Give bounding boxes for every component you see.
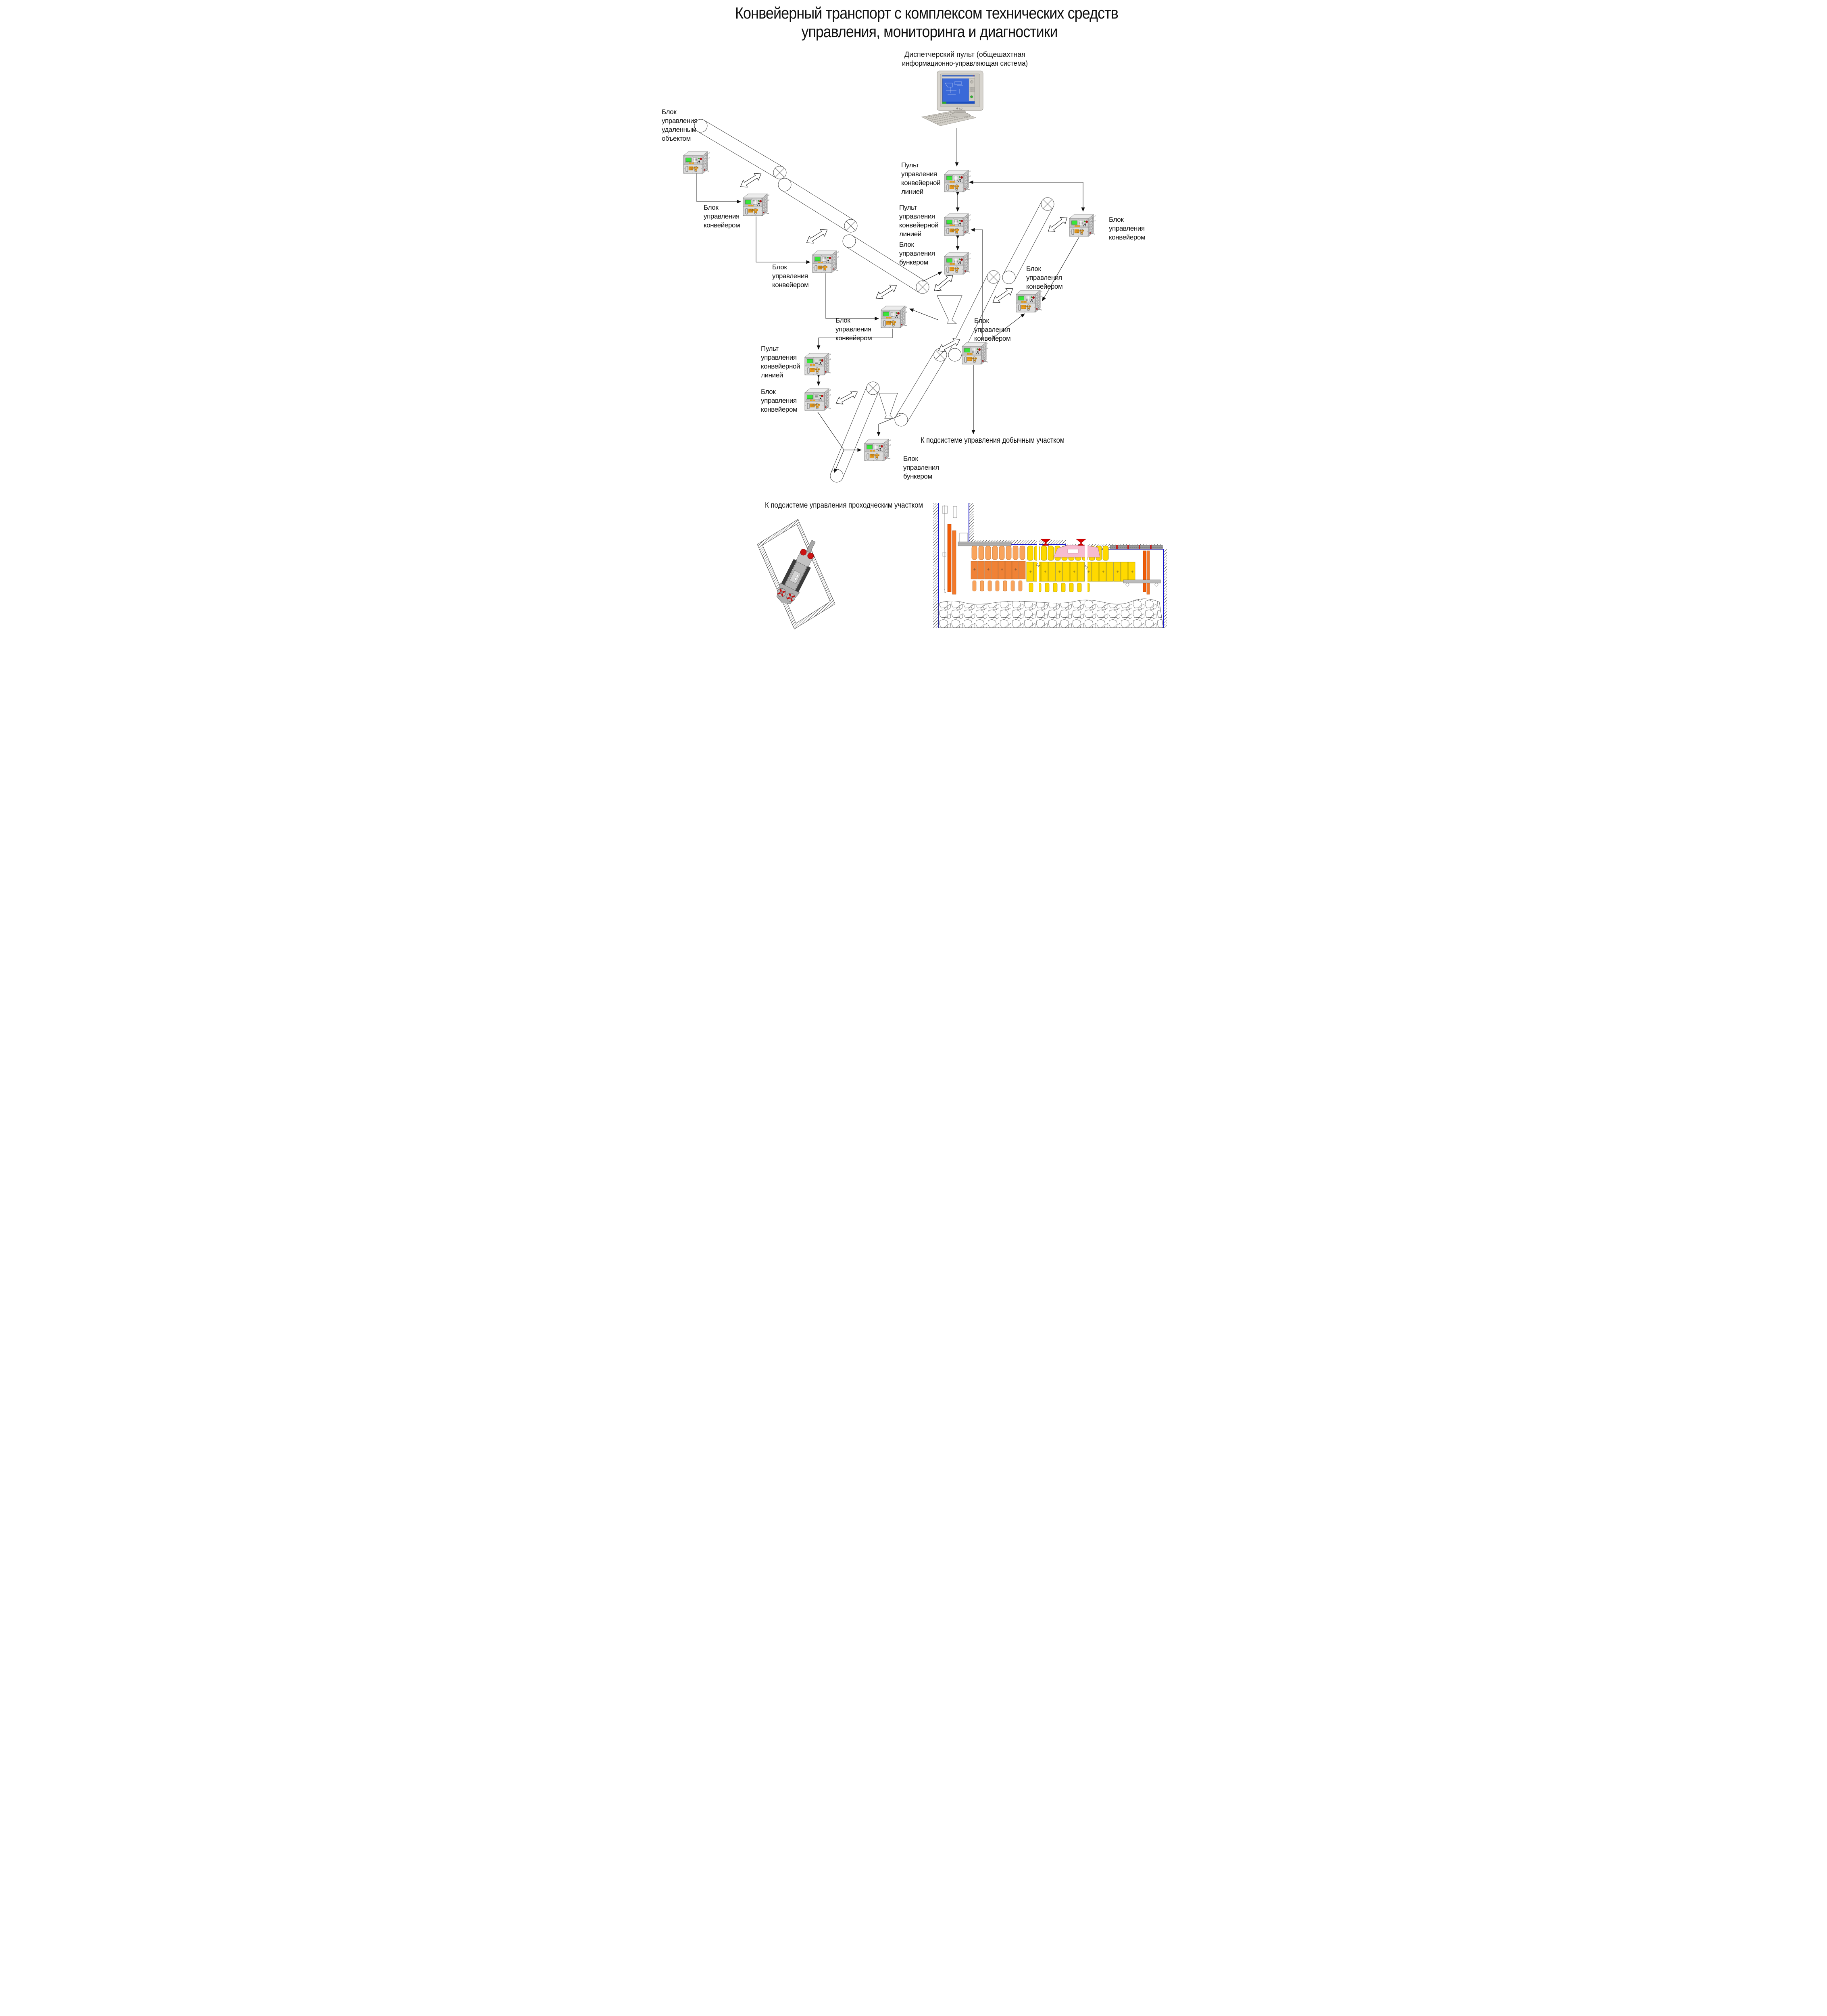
svg-text:управления: управления [761, 354, 797, 361]
conveyor-belt-2 [778, 178, 857, 232]
svg-text:Блок: Блок [704, 204, 719, 211]
svg-text:управления: управления [903, 464, 939, 471]
conveyor-control-unit-r2 [1016, 290, 1042, 312]
longwall-illustration [933, 503, 1167, 628]
svg-text:конвейерной: конвейерной [899, 221, 938, 229]
radio-link-5 [1046, 214, 1070, 235]
svg-text:Блок: Блок [899, 241, 914, 248]
svg-text:бункером: бункером [903, 473, 932, 480]
dispatcher-label-line1: Диспетчерский пульт (общешахтная [904, 50, 1025, 58]
svg-text:Пульт: Пульт [901, 161, 919, 169]
note-to-mining-section: К подсистеме управления добычным участко… [921, 436, 1065, 445]
dispatcher-pc: LG [922, 71, 983, 126]
svg-text:Блок: Блок [1109, 216, 1124, 223]
radio-link-8 [834, 388, 859, 407]
svg-text:управления: управления [1109, 225, 1145, 232]
svg-text:конвейерной: конвейерной [901, 179, 940, 187]
page-title-line2: управления, мониторинга и диагностики [801, 23, 1057, 41]
link-unit1-unit2 [697, 173, 741, 202]
orange-supports [971, 546, 1025, 591]
link-to-unit4 [910, 309, 938, 320]
shaft-conveyor-column-2 [952, 531, 956, 594]
radio-link-3 [874, 282, 898, 302]
conveyor-control-unit-4 [881, 306, 907, 328]
hopper-1 [937, 296, 962, 324]
label-conveyor-unit-r3: Блок управления конвейером [974, 317, 1010, 342]
svg-text:конвейером: конвейером [1026, 283, 1062, 290]
svg-text:управления: управления [1026, 274, 1062, 281]
radio-link-2 [804, 227, 829, 246]
svg-text:Блок: Блок [903, 455, 918, 462]
dispatcher-label-line2: информационно-управляющая система) [902, 59, 1028, 67]
conveyor-diagram: ОТКРЫВАТЬ ОТКЛЮЧИВ ОТ СЕТИ РВ 2В Иа [660, 0, 1167, 631]
line-console-2 [944, 214, 970, 235]
drive-pulley [1041, 198, 1054, 210]
label-conveyor-unit-3: Блок управления конвейером [772, 263, 808, 289]
conveyor-control-unit-2 [743, 194, 769, 216]
page-title-line1: Конвейерный транспорт с комплексом техни… [735, 4, 1118, 22]
label-bunker-unit-2: Блок управления бункером [903, 455, 939, 480]
svg-text:конвейерной: конвейерной [761, 362, 800, 370]
conveyor-control-unit-r1 [1069, 215, 1095, 236]
bunker-control-unit-1 [944, 252, 970, 274]
shaft-conveyor-column-1 [948, 524, 951, 592]
label-conveyor-unit-4: Блок управления конвейером [835, 317, 872, 342]
svg-text:управления: управления [662, 117, 698, 125]
svg-text:конвейером: конвейером [772, 281, 808, 289]
hopper-2 [879, 393, 898, 419]
conveyors [694, 119, 1054, 482]
monitor-brand: LG [959, 108, 962, 110]
caved-rock-zone [939, 599, 1163, 628]
radio-link-1 [738, 171, 763, 190]
shaft-left-wall-hatch [933, 503, 939, 628]
svg-text:линией: линией [899, 230, 921, 238]
link-to-bunker1 [923, 272, 942, 281]
svg-text:Блок: Блок [974, 317, 989, 325]
svg-text:удаленным: удаленным [662, 126, 696, 133]
svg-text:Пульт: Пульт [761, 345, 779, 352]
svg-text:конвейером: конвейером [761, 406, 797, 413]
svg-text:управления: управления [901, 170, 937, 178]
label-conveyor-unit-r1: Блок управления конвейером [1109, 216, 1145, 241]
conveyor-control-unit-5 [805, 389, 831, 410]
svg-text:управления: управления [974, 326, 1010, 333]
drive-pulley [916, 281, 929, 294]
link-unit3-unit4 [826, 273, 879, 319]
svg-text:Блок: Блок [761, 388, 776, 396]
svg-text:Блок: Блок [1026, 265, 1041, 273]
note-to-heading-section: К подсистеме управления проходческим уча… [765, 501, 923, 510]
svg-text:управления: управления [761, 397, 797, 404]
conveyor-control-unit-3 [812, 251, 838, 273]
link-unit2-unit3 [756, 217, 810, 262]
drive-pulley [867, 382, 879, 395]
label-line-console-1: Пульт управления конвейерной линией [901, 161, 940, 196]
label-line-console-2: Пульт управления конвейерной линией [899, 204, 938, 238]
svg-text:конвейером: конвейером [835, 334, 872, 342]
svg-text:управления: управления [835, 325, 871, 333]
diagram-page: ОТКРЫВАТЬ ОТКЛЮЧИВ ОТ СЕТИ РВ 2В Иа [660, 0, 1167, 631]
bunker-control-unit-2 [865, 439, 890, 461]
conveyor-control-unit-r3 [962, 342, 988, 364]
drive-pulley [844, 219, 857, 232]
label-conveyor-unit-5: Блок управления конвейером [761, 388, 797, 413]
trolley-beam [1123, 580, 1160, 583]
link-r1-to-r2 [1042, 237, 1079, 301]
svg-text:конвейером: конвейером [704, 221, 740, 229]
svg-text:Блок: Блок [772, 263, 787, 271]
right-conveyor-column-2 [1147, 551, 1150, 594]
svg-text:Пульт: Пульт [899, 204, 917, 211]
svg-text:Блок: Блок [662, 108, 677, 116]
roadheader-illustration [757, 519, 835, 629]
svg-text:объектом: объектом [662, 135, 691, 142]
svg-text:управления: управления [704, 212, 740, 220]
svg-text:бункером: бункером [899, 258, 928, 266]
svg-text:управления: управления [899, 250, 935, 257]
label-bunker-unit-1: Блок управления бункером [899, 241, 935, 266]
svg-text:линией: линией [761, 371, 783, 379]
taskbar [942, 102, 975, 104]
drive-pulley [987, 271, 1000, 283]
right-conveyor-column-1 [1143, 551, 1146, 592]
svg-text:конвейером: конвейером [1109, 233, 1145, 241]
remote-object-control-unit [683, 152, 709, 173]
radio-link-4 [931, 272, 955, 294]
text-labels: Конвейерный транспорт с комплексом техни… [662, 4, 1145, 510]
svg-text:линией: линией [901, 188, 923, 196]
svg-text:управления: управления [899, 212, 935, 220]
svg-text:управления: управления [772, 272, 808, 280]
conveyor-belt-1 [694, 119, 786, 179]
line-console-1 [944, 170, 970, 192]
hoist-cylinder [942, 506, 948, 513]
conveyor-belt-6 [895, 348, 947, 426]
line-console-3 [805, 353, 831, 375]
label-conveyor-unit-2: Блок управления конвейером [704, 204, 740, 229]
svg-text:Блок: Блок [835, 317, 850, 324]
drive-pulley [773, 166, 786, 179]
label-remote-object-unit: Блок управления удаленным объектом [662, 108, 698, 142]
svg-text:конвейером: конвейером [974, 335, 1010, 342]
label-line-console-3: Пульт управления конвейерной линией [761, 345, 800, 379]
label-conveyor-unit-r2: Блок управления конвейером [1026, 265, 1062, 290]
